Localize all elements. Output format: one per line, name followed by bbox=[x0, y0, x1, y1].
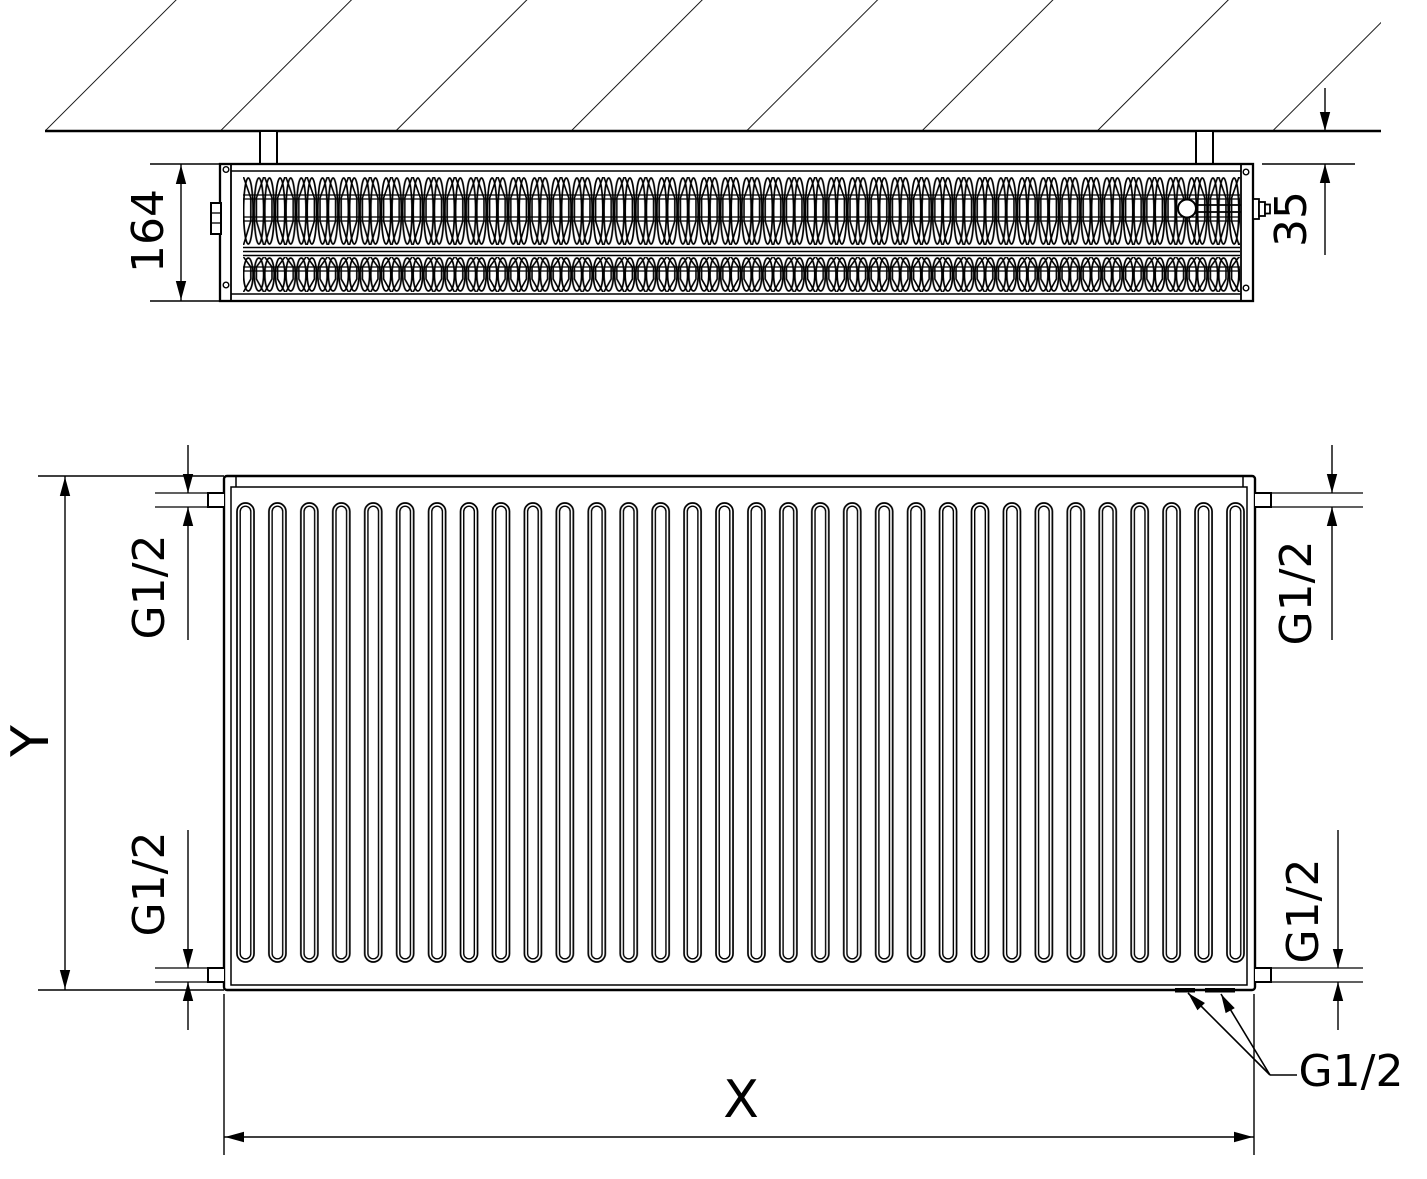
arrowhead bbox=[183, 982, 193, 1001]
vertical-channel-field bbox=[235, 500, 1246, 966]
dim-height-label: Y bbox=[5, 725, 57, 757]
arrowhead bbox=[1333, 949, 1343, 968]
bottom-port-right bbox=[1205, 988, 1235, 993]
valve-spindle-flange bbox=[1253, 199, 1259, 219]
radiator-top-view-body bbox=[211, 164, 1270, 301]
bottom-port-left bbox=[1175, 988, 1195, 993]
front-view bbox=[38, 445, 1363, 1155]
convector-fins-lower bbox=[243, 257, 1240, 292]
arrowhead bbox=[1333, 982, 1343, 1001]
arrowhead bbox=[183, 507, 193, 526]
arrowhead bbox=[60, 477, 70, 496]
stub-top-left bbox=[208, 493, 224, 507]
arrowhead bbox=[176, 281, 186, 300]
g12-leader-callout bbox=[1188, 993, 1297, 1075]
arrowhead bbox=[1327, 474, 1337, 493]
convector-fins-upper bbox=[243, 177, 1240, 245]
arrowhead bbox=[225, 1132, 244, 1142]
radiator-technical-drawing bbox=[0, 0, 1427, 1179]
dim-wall-clearance-label: 35 bbox=[1270, 191, 1314, 247]
conn-bottom-left-label: G1/2 bbox=[128, 832, 172, 937]
dim-depth-label: 164 bbox=[127, 189, 171, 273]
stub-top-right bbox=[1255, 493, 1271, 507]
conn-top-left-label: G1/2 bbox=[128, 535, 172, 640]
wall-bracket-right bbox=[1196, 131, 1213, 164]
air-vent-left bbox=[211, 203, 221, 234]
conn-bottom-callout-label: G1/2 bbox=[1299, 1050, 1404, 1094]
arrowhead bbox=[1327, 507, 1337, 526]
conn-bottom-right-label: G1/2 bbox=[1282, 859, 1326, 964]
dim-length-label: X bbox=[723, 1074, 759, 1126]
valve-spindle-hex bbox=[1259, 202, 1265, 216]
wall-hatching bbox=[45, 0, 1381, 130]
arrowhead bbox=[1216, 991, 1234, 1013]
conn-top-right-label: G1/2 bbox=[1275, 541, 1319, 646]
arrowhead bbox=[1320, 164, 1330, 183]
top-view bbox=[45, 0, 1381, 301]
arrowhead bbox=[1234, 1132, 1253, 1142]
arrowhead bbox=[183, 474, 193, 493]
arrowhead bbox=[176, 165, 186, 184]
arrowhead bbox=[183, 949, 193, 968]
arrowhead bbox=[60, 970, 70, 989]
stub-bottom-right bbox=[1255, 968, 1271, 982]
drawing-canvas: 164 35 Y X G1/2 G1/2 G1/2 G1/2 G1/2 bbox=[0, 0, 1427, 1179]
stub-bottom-left bbox=[208, 968, 224, 982]
wall-bracket-left bbox=[260, 131, 277, 164]
